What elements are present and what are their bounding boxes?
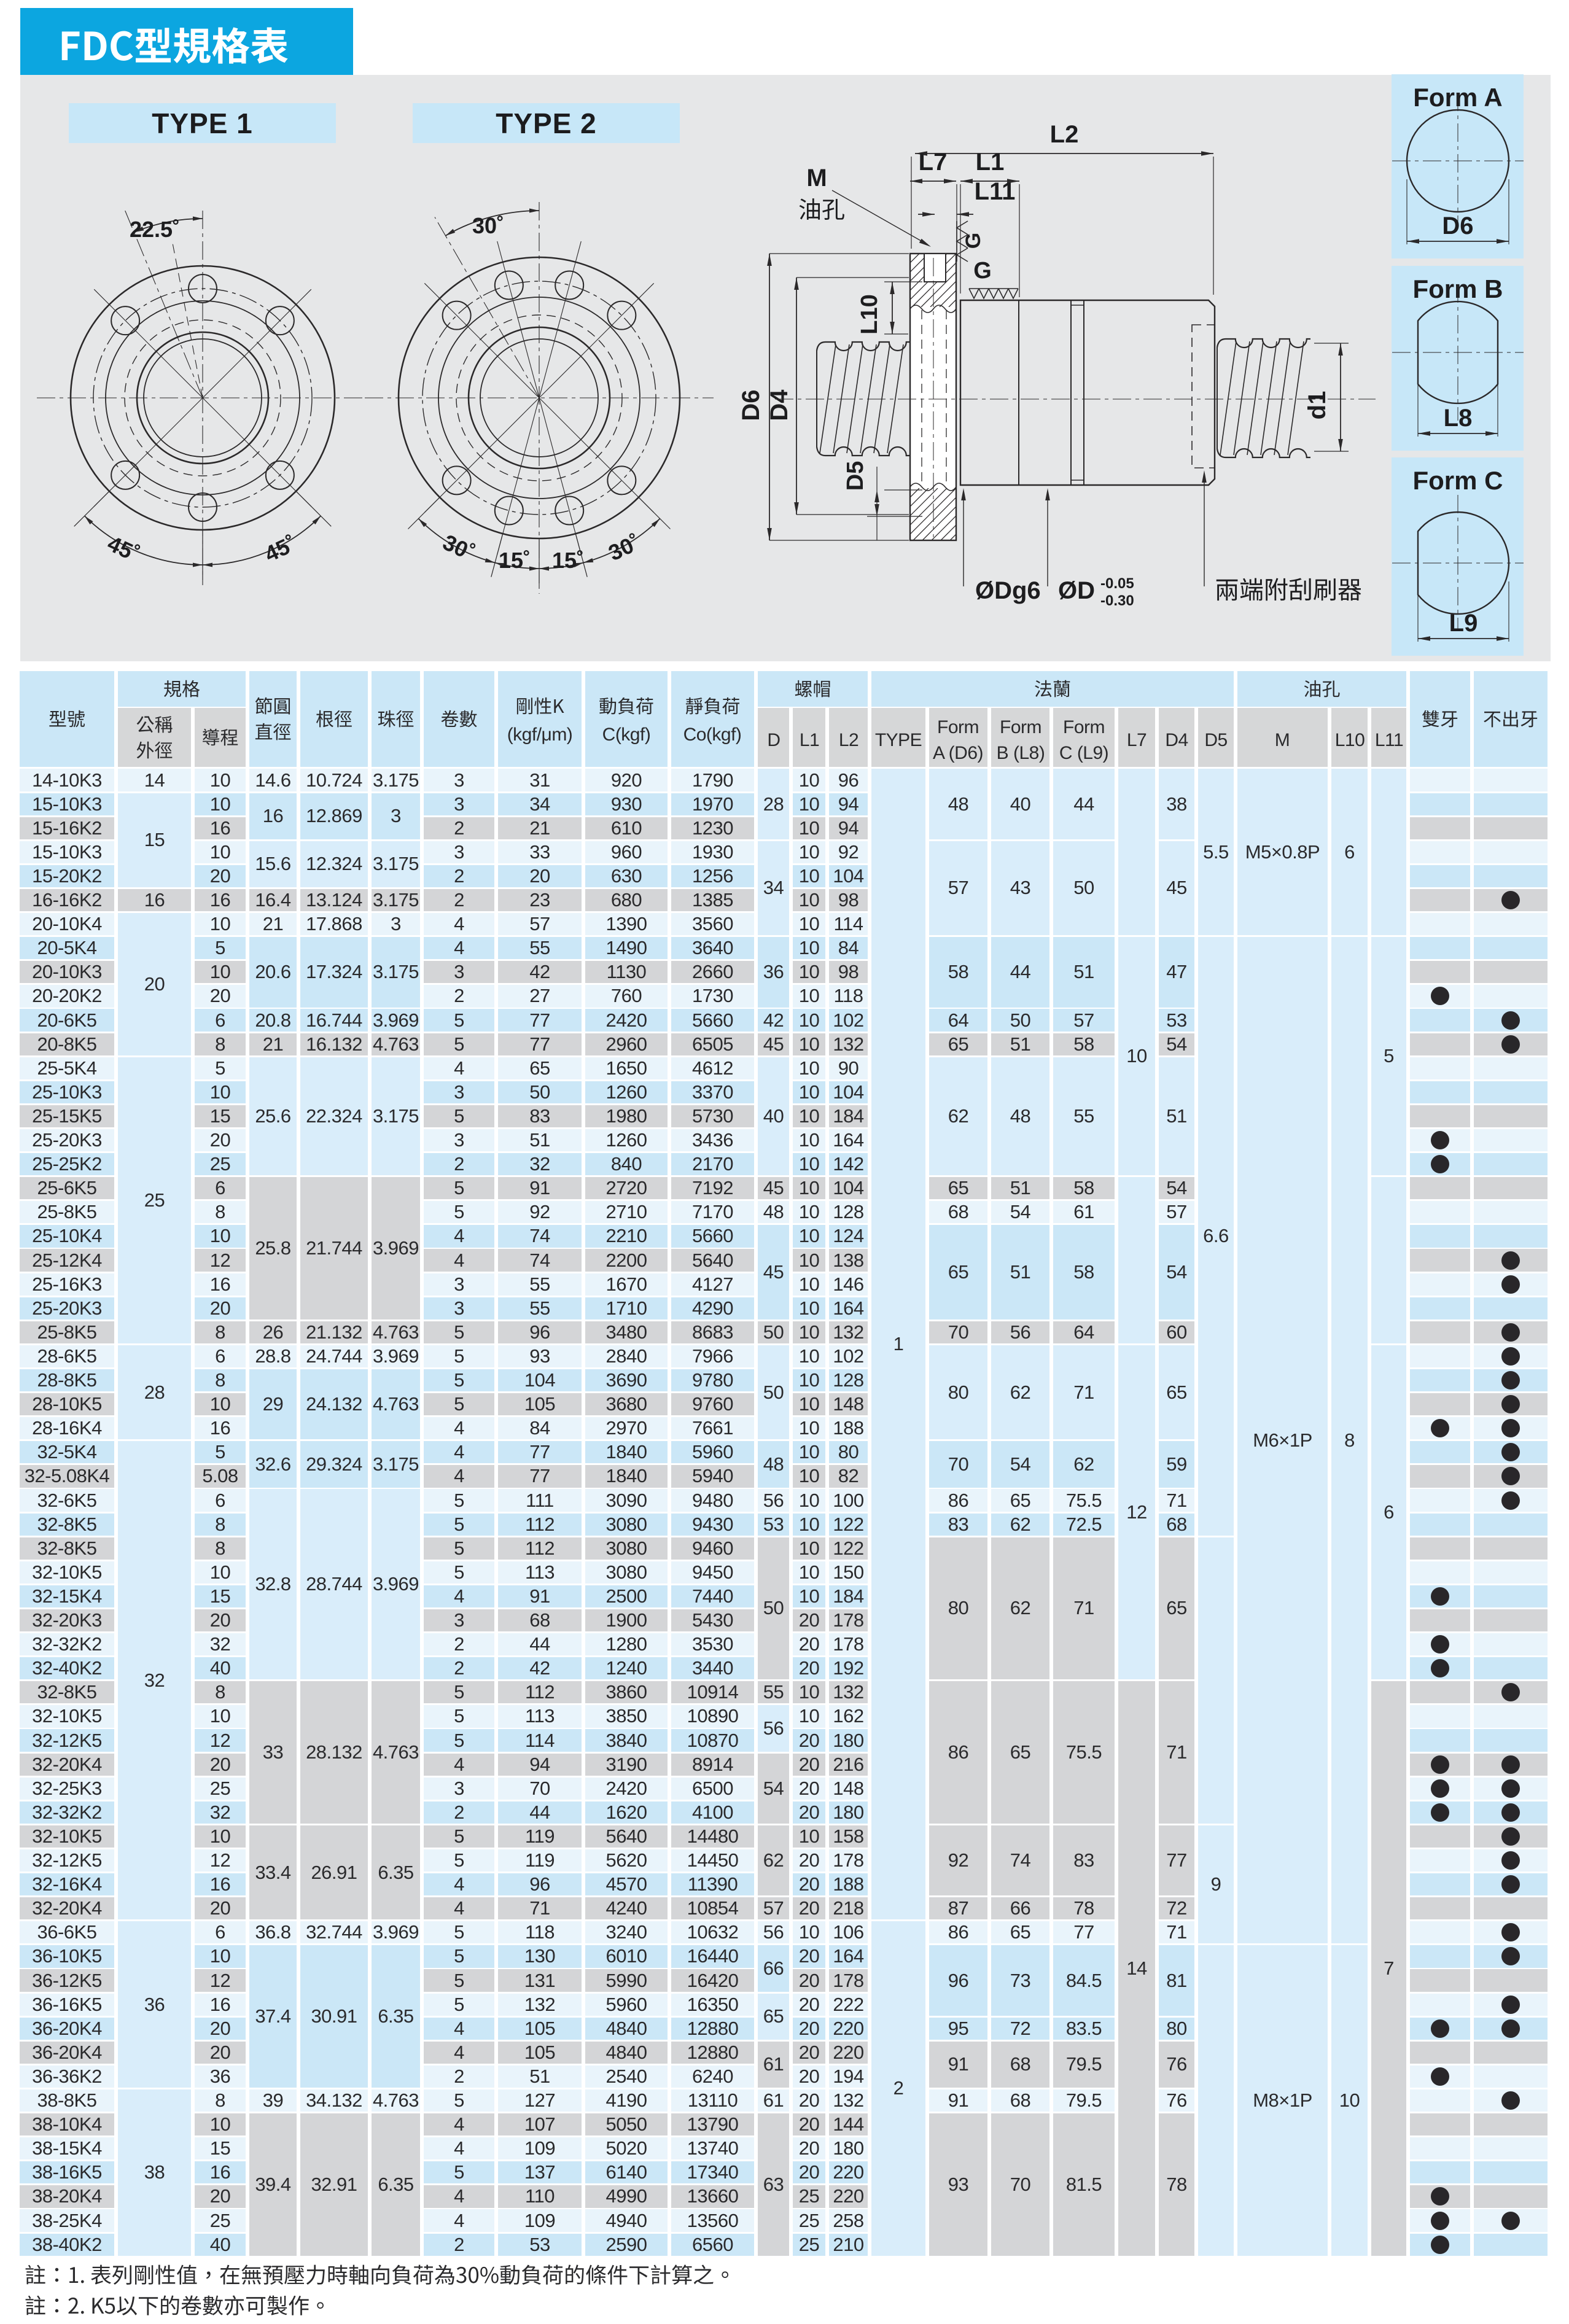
svg-text:ØDg6: ØDg6 xyxy=(975,577,1041,604)
svg-text:G: G xyxy=(973,258,992,284)
svg-text:15˚: 15˚ xyxy=(552,548,584,573)
svg-text:Form C: Form C xyxy=(1413,466,1503,495)
svg-text:L11: L11 xyxy=(975,178,1016,205)
svg-text:D4: D4 xyxy=(766,389,793,421)
svg-text:45˚: 45˚ xyxy=(260,530,300,567)
svg-text:ØD: ØD xyxy=(1058,577,1095,604)
svg-text:L2: L2 xyxy=(1050,121,1079,148)
svg-text:-0.30: -0.30 xyxy=(1100,593,1134,609)
svg-text:D5: D5 xyxy=(843,461,868,491)
svg-text:15˚: 15˚ xyxy=(499,548,531,573)
svg-text:G: G xyxy=(962,233,985,249)
svg-text:D6: D6 xyxy=(1442,212,1473,239)
svg-text:-0.05: -0.05 xyxy=(1100,575,1134,592)
svg-text:L9: L9 xyxy=(1449,610,1478,637)
svg-text:30˚: 30˚ xyxy=(439,529,478,565)
svg-text:22.5˚: 22.5˚ xyxy=(130,217,180,242)
svg-text:45˚: 45˚ xyxy=(104,530,143,567)
svg-text:L10: L10 xyxy=(857,294,882,334)
svg-text:L7: L7 xyxy=(919,149,948,176)
svg-text:M: M xyxy=(806,165,827,192)
svg-text:L8: L8 xyxy=(1444,405,1473,432)
svg-text:30˚: 30˚ xyxy=(472,213,504,238)
svg-text:D6: D6 xyxy=(738,389,765,421)
svg-text:L1: L1 xyxy=(976,149,1005,176)
svg-text:30˚: 30˚ xyxy=(604,529,644,565)
svg-text:d1: d1 xyxy=(1304,391,1331,420)
